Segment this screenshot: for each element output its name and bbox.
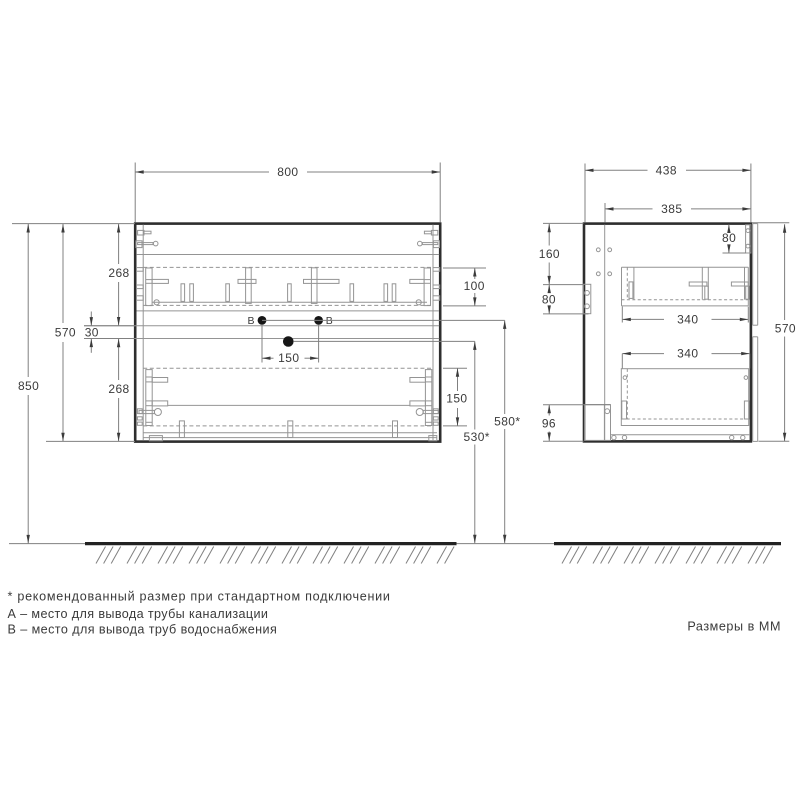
svg-text:268: 268: [108, 382, 129, 396]
svg-text:100: 100: [464, 279, 485, 293]
svg-text:80: 80: [722, 231, 736, 245]
svg-text:Размеры в ММ: Размеры в ММ: [687, 620, 781, 634]
svg-text:800: 800: [277, 165, 298, 179]
svg-text:530*: 530*: [464, 430, 490, 444]
svg-text:А – место для вывода трубы кан: А – место для вывода трубы канализации: [8, 607, 269, 621]
svg-text:96: 96: [542, 416, 556, 430]
svg-text:850: 850: [18, 379, 39, 393]
svg-text:30: 30: [85, 325, 99, 339]
svg-text:268: 268: [108, 266, 129, 280]
svg-text:80: 80: [542, 292, 556, 306]
svg-text:150: 150: [278, 351, 299, 365]
svg-text:150: 150: [446, 392, 467, 406]
svg-text:340: 340: [677, 312, 698, 326]
svg-text:* рекомендованный размер при с: * рекомендованный размер при стандартном…: [8, 590, 391, 604]
svg-text:340: 340: [677, 347, 698, 361]
svg-text:В – место для вывода труб водо: В – место для вывода труб водоснабжения: [8, 623, 278, 637]
svg-text:580*: 580*: [494, 415, 520, 429]
svg-text:438: 438: [656, 163, 677, 177]
svg-text:385: 385: [661, 202, 682, 216]
svg-text:160: 160: [539, 247, 560, 261]
svg-text:570: 570: [775, 321, 796, 335]
svg-text:570: 570: [55, 325, 76, 339]
